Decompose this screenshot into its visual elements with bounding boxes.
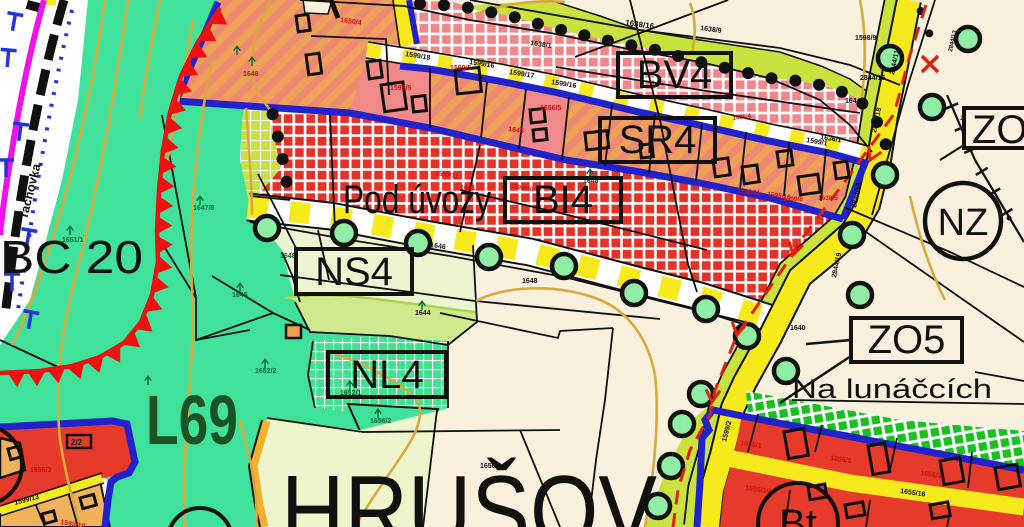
svg-text:1599/5: 1599/5 <box>450 65 472 72</box>
svg-text:ZO: ZO <box>972 108 1024 152</box>
svg-text:1599/5: 1599/5 <box>390 85 412 92</box>
svg-text:NS4: NS4 <box>315 250 393 294</box>
svg-text:1599/8: 1599/8 <box>783 196 803 203</box>
svg-text:1656/5: 1656/5 <box>540 105 562 112</box>
svg-text:1645: 1645 <box>232 292 248 299</box>
svg-text:1636/5: 1636/5 <box>818 195 838 202</box>
svg-text:ZO5: ZO5 <box>868 318 946 362</box>
svg-text:BI4: BI4 <box>533 178 593 222</box>
svg-text:1652/2: 1652/2 <box>255 368 277 375</box>
svg-text:1648: 1648 <box>243 71 259 78</box>
svg-text:Na lunáčcích: Na lunáčcích <box>792 374 992 404</box>
svg-text:1648: 1648 <box>522 278 538 285</box>
svg-text:1656/2: 1656/2 <box>370 418 392 425</box>
svg-text:1598/9: 1598/9 <box>855 35 877 42</box>
svg-text:HRUŠOV: HRUŠOV <box>281 456 657 527</box>
svg-text:2/2: 2/2 <box>71 438 83 447</box>
svg-text:L69: L69 <box>146 381 238 459</box>
svg-text:1647/8: 1647/8 <box>193 205 215 212</box>
svg-text:NZ: NZ <box>938 202 989 244</box>
svg-text:1640: 1640 <box>790 325 806 332</box>
svg-text:BV4: BV4 <box>637 53 713 97</box>
svg-text:2844/15: 2844/15 <box>860 75 885 82</box>
svg-text:1644: 1644 <box>845 98 861 105</box>
svg-text:SR4: SR4 <box>619 118 697 162</box>
svg-text:1648: 1648 <box>280 253 296 260</box>
svg-text:Pod úvozy: Pod úvozy <box>343 178 491 222</box>
svg-text:BC 20: BC 20 <box>0 231 143 283</box>
svg-text:NL4: NL4 <box>350 353 423 397</box>
svg-text:Bt: Bt <box>779 502 817 527</box>
svg-text:1656/3: 1656/3 <box>30 467 52 474</box>
svg-text:1644: 1644 <box>415 310 431 317</box>
